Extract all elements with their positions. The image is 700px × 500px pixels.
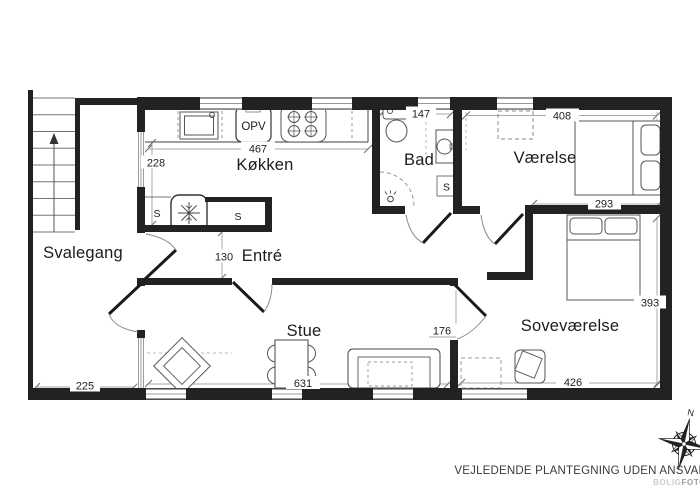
room-label-bad: Bad — [404, 151, 434, 169]
door-sovevaerelse — [455, 285, 486, 339]
floor-plan: OPV — [0, 0, 700, 500]
closet-label-entre-1: S — [153, 208, 160, 220]
snowflake-icon — [178, 202, 200, 224]
door-stue-balcony — [109, 284, 141, 332]
dim-entre-opening: 130 — [215, 252, 233, 264]
compass-rose-icon: N — [653, 402, 700, 474]
stairs — [33, 98, 75, 232]
dim-kokken-depth: 228 — [147, 158, 165, 170]
dim-sovevaerelse-depth: 393 — [641, 298, 659, 310]
room-label-kokken: Køkken — [236, 156, 293, 174]
brand-watermark: BOLIGFOTO — [653, 478, 700, 487]
dishwasher: OPV — [236, 107, 271, 142]
shower — [380, 172, 414, 206]
room-label-svalegang: Svalegang — [43, 244, 123, 262]
dim-vaerelse-inner: 293 — [595, 199, 613, 211]
dim-svalegang-width: 225 — [76, 381, 94, 393]
door-entrance — [144, 234, 176, 280]
closet-label-bad: S — [443, 182, 450, 194]
window-west-2 — [137, 338, 145, 388]
floor-plan-svg: OPV — [0, 0, 700, 500]
room-label-vaerelse: Værelse — [514, 149, 577, 167]
door-bad — [406, 213, 451, 243]
compass-north-label: N — [686, 407, 694, 418]
window-bottom-1 — [146, 389, 186, 399]
bed-sovevaerelse — [567, 215, 640, 300]
kitchen-sink — [180, 112, 218, 139]
window-top-1 — [200, 98, 242, 110]
window-top-2 — [312, 98, 352, 110]
brand-bold: FOTO — [682, 478, 700, 487]
disclaimer-text: VEJLEDENDE PLANTEGNING UDEN ANSVAR — [454, 465, 700, 477]
sofa — [348, 349, 440, 388]
window-top-4 — [497, 98, 533, 110]
door-vaerelse — [481, 214, 523, 244]
room-label-sovevaerelse: Soveværelse — [521, 317, 620, 335]
stairs-up-arrow-icon — [50, 133, 59, 144]
bed-vaerelse — [575, 121, 661, 195]
dishwasher-label: OPV — [241, 121, 266, 133]
dim-sovevaerelse-passage: 176 — [433, 326, 451, 338]
shower-head-icon — [385, 191, 396, 202]
dim-vaerelse-width: 408 — [553, 111, 571, 123]
stove — [281, 105, 326, 142]
window-bottom-4 — [462, 389, 527, 399]
toilet — [383, 106, 410, 142]
dim-kokken-width: 467 — [249, 144, 267, 156]
window-bottom-2 — [272, 389, 302, 399]
window-bottom-3 — [373, 389, 413, 399]
closet-label-entre-2: S — [234, 211, 241, 223]
door-entre-stue — [233, 282, 272, 312]
room-label-entre: Entré — [242, 247, 282, 265]
room-label-stue: Stue — [287, 322, 322, 340]
washbasin — [436, 130, 454, 163]
brand-light: BOLIG — [653, 478, 681, 487]
dim-sovevaerelse-width: 426 — [564, 377, 582, 389]
dim-stue-width: 631 — [294, 378, 312, 390]
chair-sovevaerelse — [515, 350, 545, 383]
dim-bad-width: 147 — [412, 109, 430, 121]
lounge-chair — [154, 338, 211, 395]
